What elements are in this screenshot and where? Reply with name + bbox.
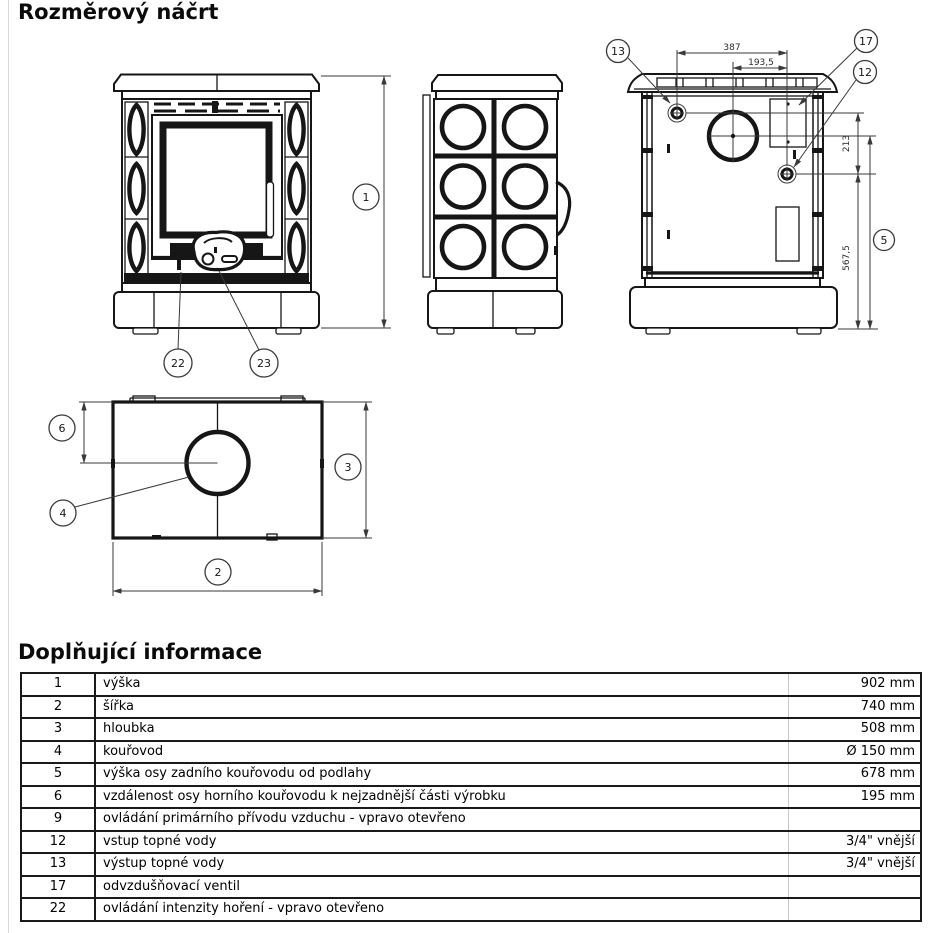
- row-value: 902 mm: [788, 674, 920, 695]
- row-number: 2: [22, 697, 96, 718]
- stove-door: [152, 115, 282, 270]
- table-row: 1 výška 902 mm: [22, 674, 920, 697]
- row-label: výstup topné vody: [96, 854, 788, 875]
- balloon-22: 22: [164, 349, 192, 377]
- row-number: 12: [22, 832, 96, 853]
- row-number: 6: [22, 787, 96, 808]
- section-title: Doplňující informace: [18, 640, 262, 664]
- row-number: 13: [22, 854, 96, 875]
- row-label: odvzdušňovací ventil: [96, 877, 788, 898]
- row-value: 678 mm: [788, 764, 920, 785]
- table-row: 9 ovládání primárního přívodu vzduchu - …: [22, 809, 920, 832]
- row-label: vstup topné vody: [96, 832, 788, 853]
- row-number: 9: [22, 809, 96, 830]
- info-table: 1 výška 902 mm 2 šířka 740 mm 3 hloubka …: [20, 672, 922, 922]
- side-view: [423, 75, 570, 334]
- row-number: 4: [22, 742, 96, 763]
- balloon-17: 17: [855, 30, 878, 53]
- balloon-12: 12: [854, 61, 877, 84]
- table-row: 4 kouřovod Ø 150 mm: [22, 742, 920, 765]
- row-label: hloubka: [96, 719, 788, 740]
- dimensional-drawing: 387 193,5 213 567,5 1 22 23 13 17 12: [0, 20, 935, 638]
- rear-view: [628, 62, 876, 334]
- table-row: 6 vzdálenost osy horního kouřovodu k nej…: [22, 787, 920, 810]
- table-row: 2 šířka 740 mm: [22, 697, 920, 720]
- svg-text:17: 17: [859, 35, 873, 48]
- dim-193-5: 193,5: [748, 58, 774, 68]
- side-door-handle: [556, 182, 570, 235]
- balloon-3: 3: [335, 454, 361, 480]
- burn-control-lever: [177, 256, 181, 270]
- row-value: 3/4" vnější: [788, 854, 920, 875]
- svg-text:13: 13: [611, 45, 625, 58]
- table-row: 13 výstup topné vody 3/4" vnější: [22, 854, 920, 877]
- row-label: ovládání intenzity hoření - vpravo otevř…: [96, 899, 788, 920]
- row-number: 3: [22, 719, 96, 740]
- row-label: vzdálenost osy horního kouřovodu k nejza…: [96, 787, 788, 808]
- table-row: 12 vstup topné vody 3/4" vnější: [22, 832, 920, 855]
- row-value: [788, 809, 920, 830]
- balloon-2: 2: [205, 559, 231, 585]
- row-value: 3/4" vnější: [788, 832, 920, 853]
- water-inlet-fitting: [778, 165, 796, 183]
- row-number: 5: [22, 764, 96, 785]
- row-value: Ø 150 mm: [788, 742, 920, 763]
- dim-567-5: 567,5: [842, 245, 852, 271]
- svg-text:23: 23: [257, 357, 271, 370]
- top-view: [80, 396, 324, 540]
- balloon-5: 5: [874, 230, 895, 251]
- balloon-1: 1: [353, 184, 379, 210]
- dim-213: 213: [842, 135, 852, 152]
- row-number: 17: [22, 877, 96, 898]
- svg-text:4: 4: [60, 507, 67, 520]
- svg-text:3: 3: [345, 461, 352, 474]
- balloon-4: 4: [50, 500, 76, 526]
- balloon-6: 6: [49, 415, 75, 441]
- balloon-13: 13: [607, 40, 630, 63]
- row-number: 1: [22, 674, 96, 695]
- document-page: Rozměrový náčrt: [0, 0, 935, 933]
- table-row: 5 výška osy zadního kouřovodu od podlahy…: [22, 764, 920, 787]
- svg-text:1: 1: [363, 191, 370, 204]
- table-row: 17 odvzdušňovací ventil: [22, 877, 920, 900]
- svg-text:22: 22: [171, 357, 185, 370]
- row-label: výška osy zadního kouřovodu od podlahy: [96, 764, 788, 785]
- table-row: 3 hloubka 508 mm: [22, 719, 920, 742]
- vent-valve-box: [770, 99, 806, 147]
- dim-387: 387: [723, 43, 740, 53]
- svg-text:12: 12: [858, 66, 872, 79]
- top-grille: [154, 101, 280, 113]
- svg-text:5: 5: [881, 234, 888, 247]
- front-view: [114, 75, 319, 335]
- balloon-23: 23: [250, 349, 278, 377]
- row-value: 508 mm: [788, 719, 920, 740]
- row-value: 195 mm: [788, 787, 920, 808]
- water-outlet-fitting: [668, 104, 686, 122]
- row-value: [788, 877, 920, 898]
- table-row: 22 ovládání intenzity hoření - vpravo ot…: [22, 899, 920, 920]
- row-value: [788, 899, 920, 920]
- svg-text:6: 6: [59, 422, 66, 435]
- row-label: ovládání primárního přívodu vzduchu - vp…: [96, 809, 788, 830]
- door-handle: [267, 182, 274, 237]
- row-value: 740 mm: [788, 697, 920, 718]
- row-label: výška: [96, 674, 788, 695]
- row-number: 22: [22, 899, 96, 920]
- svg-text:2: 2: [215, 566, 222, 579]
- row-label: kouřovod: [96, 742, 788, 763]
- rear-grille-slots: [676, 78, 803, 87]
- brand-emblem: [193, 232, 244, 270]
- row-label: šířka: [96, 697, 788, 718]
